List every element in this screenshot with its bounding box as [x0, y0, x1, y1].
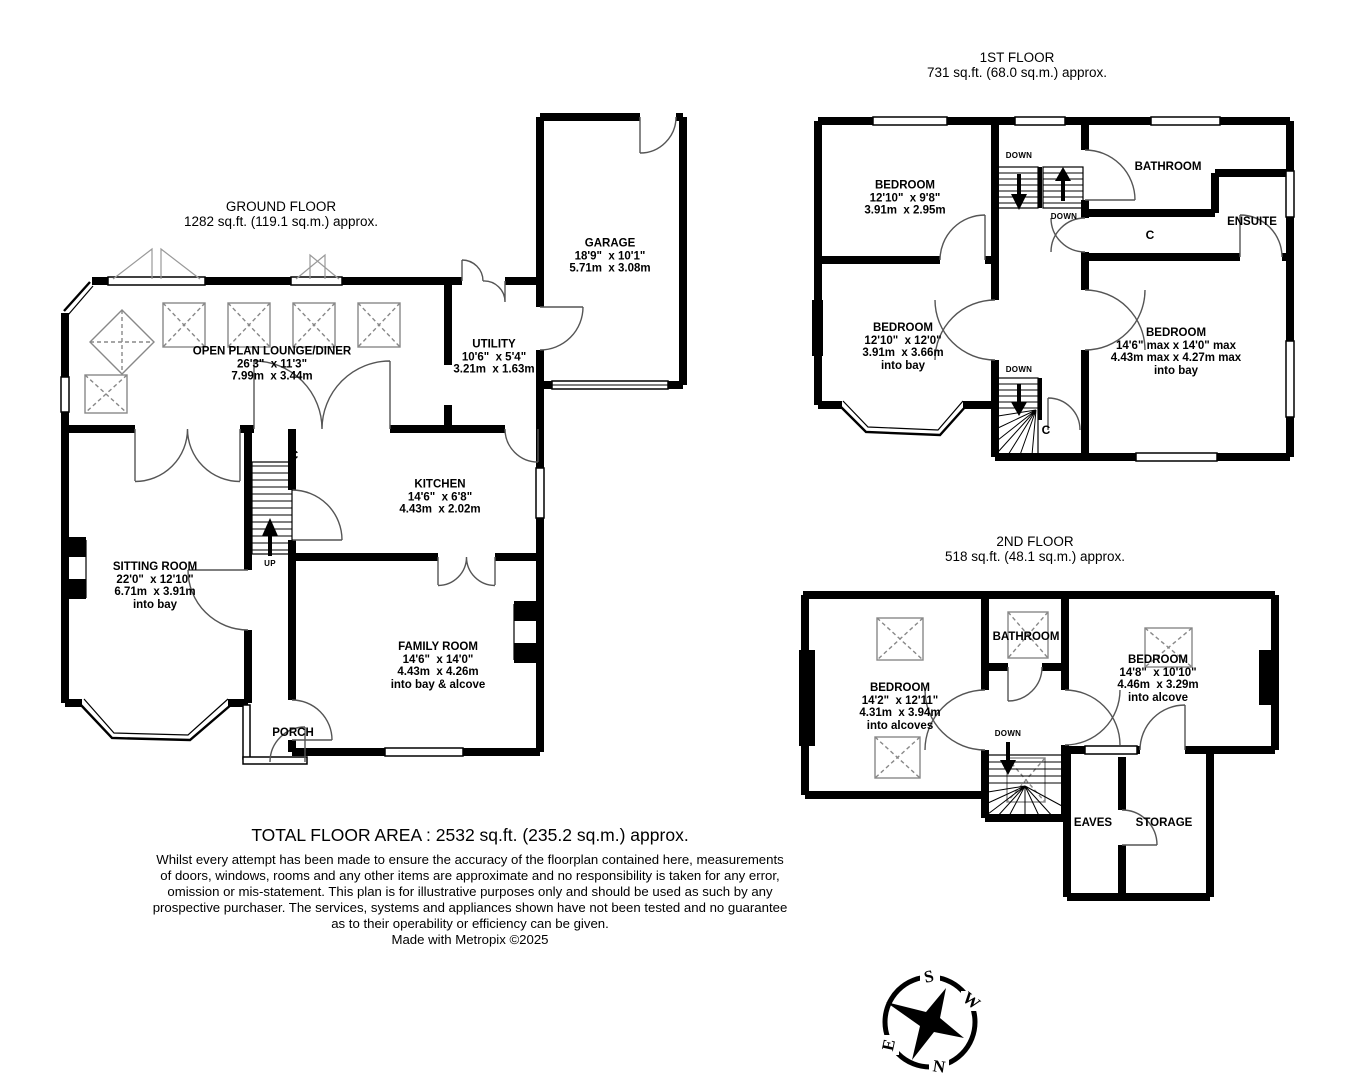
window-opening-symbol [113, 249, 339, 279]
room-label-lounge: OPEN PLAN LOUNGE/DINER 26'3" x 11'3" 7.9… [193, 345, 351, 383]
room-label-bedroom2: BEDROOM 12'10" x 12'0" 3.91m x 3.66m int… [862, 322, 943, 372]
floorplan-page: GROUND FLOOR 1282 sq.ft. (119.1 sq.m.) a… [0, 0, 1358, 1080]
second-stairs [988, 742, 1062, 818]
room-label-utility: UTILITY 10'6" x 5'4" 3.21m x 1.63m [453, 338, 534, 376]
room-label-bedroom5: BEDROOM 14'8" x 10'10" 4.46m x 3.29m int… [1117, 654, 1198, 704]
cupboard-label: C [290, 449, 299, 462]
room-label-bedroom3: BEDROOM 14'6" max x 14'0" max 4.43m max … [1111, 327, 1241, 377]
cupboard-label: C [1146, 229, 1155, 242]
first-stairs-lower [998, 378, 1040, 455]
ground-windows [61, 277, 668, 764]
cupboard-label: C [1042, 424, 1051, 437]
eaves-wall [799, 650, 815, 746]
first-floor-title: 1ST FLOOR 731 sq.ft. (68.0 sq.m.) approx… [927, 50, 1107, 80]
stairs-down-label: DOWN [995, 728, 1022, 741]
room-label-garage: GARAGE 18'9" x 10'1" 5.71m x 3.08m [569, 237, 650, 275]
first-stairs-top [998, 167, 1083, 210]
second-floor-title: 2ND FLOOR 518 sq.ft. (48.1 sq.m.) approx… [945, 534, 1125, 564]
room-label-family-room: FAMILY ROOM 14'6" x 14'0" 4.43m x 4.26m … [391, 641, 486, 691]
bay-window [840, 406, 966, 435]
disclaimer-text: Whilst every attempt has been made to en… [110, 852, 830, 947]
room-label-porch: PORCH [272, 727, 314, 740]
room-label-eaves: EAVES [1074, 817, 1112, 830]
room-label-sitting-room: SITTING ROOM 22'0" x 12'10" 6.71m x 3.91… [113, 561, 197, 611]
stairs-down-label: DOWN [1006, 364, 1033, 377]
room-label-storage: STORAGE [1136, 817, 1193, 830]
ground-floor-title: GROUND FLOOR 1282 sq.ft. (119.1 sq.m.) a… [184, 199, 378, 229]
stairs-down-label: DOWN [1051, 211, 1078, 224]
stairs-up-label: UP [264, 558, 276, 571]
first-doors [935, 150, 1282, 430]
room-label-bathroom-1f: BATHROOM [1135, 161, 1202, 174]
eaves-wall [1259, 650, 1275, 705]
room-label-bedroom4: BEDROOM 14'2" x 12'11" 4.31m x 3.94m int… [859, 682, 940, 732]
room-label-bathroom-2f: BATHROOM [993, 631, 1060, 644]
first-floor-plan [812, 117, 1294, 461]
stairs-down-label: DOWN [1006, 150, 1033, 163]
ground-stairs [252, 462, 292, 556]
room-label-bedroom1: BEDROOM 12'10" x 9'8" 3.91m x 2.95m [864, 179, 945, 217]
total-floor-area: TOTAL FLOOR AREA : 2532 sq.ft. (235.2 sq… [251, 829, 688, 842]
room-label-kitchen: KITCHEN 14'6" x 6'8" 4.43m x 2.02m [399, 478, 480, 516]
room-label-ensuite: ENSUITE [1227, 216, 1277, 229]
